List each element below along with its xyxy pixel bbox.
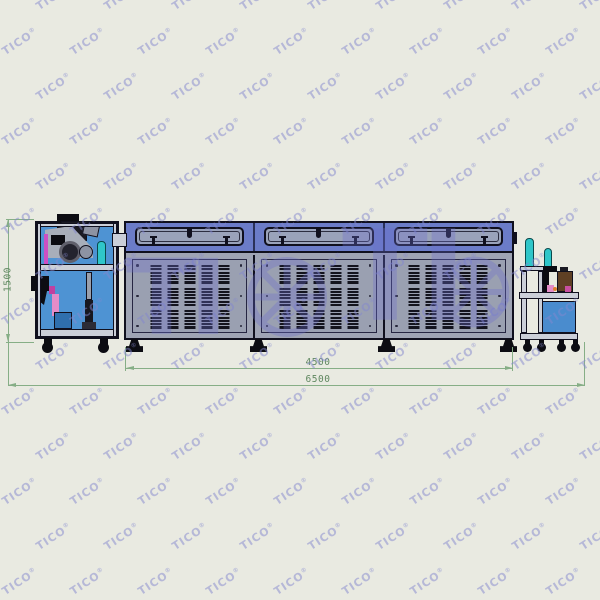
tico-watermark-tile: TICO® xyxy=(578,430,600,463)
dimension-line xyxy=(126,368,513,369)
tico-watermark-tile: TICO® xyxy=(238,520,279,553)
tico-watermark-tile: TICO® xyxy=(374,160,415,193)
screw-icon xyxy=(240,295,243,298)
cart-table-top xyxy=(519,292,579,299)
tico-watermark-tile: TICO® xyxy=(170,430,211,463)
tico-watermark-tile: TICO® xyxy=(0,430,6,463)
tico-watermark-tile: TICO® xyxy=(544,115,585,148)
screw-icon xyxy=(136,325,139,328)
cart-cylinder-short xyxy=(544,248,552,267)
tunnel-body xyxy=(126,255,512,338)
window-latch-icon xyxy=(410,236,413,244)
tico-watermark-tile: TICO® xyxy=(238,70,279,103)
tico-watermark-tile: TICO® xyxy=(306,520,347,553)
feeder-magenta-strip xyxy=(44,234,48,264)
tico-watermark-tile: TICO® xyxy=(544,205,585,238)
arrowhead-icon xyxy=(8,383,16,387)
window-latch-icon xyxy=(187,227,192,238)
tico-watermark-tile: TICO® xyxy=(34,520,75,553)
tunnel-section-body xyxy=(385,255,512,338)
dimension-label-total-length: 6500 xyxy=(238,374,398,385)
feeder-rod-dark xyxy=(85,300,93,322)
tico-watermark-tile: TICO® xyxy=(0,115,40,148)
tico-watermark-tile: TICO® xyxy=(408,475,449,508)
dimension-label-tunnel-length: 4500 xyxy=(238,357,398,368)
arrowhead-icon xyxy=(6,334,10,342)
tico-watermark-tile: TICO® xyxy=(272,25,313,58)
tico-watermark-tile: TICO® xyxy=(476,385,517,418)
tico-watermark-tile: TICO® xyxy=(102,430,143,463)
screw-icon xyxy=(266,264,269,267)
screw-icon xyxy=(136,264,139,267)
arrowhead-icon xyxy=(6,219,10,227)
tico-watermark-tile: TICO® xyxy=(442,430,483,463)
cart-cabinet xyxy=(542,301,576,333)
tico-watermark-tile: TICO® xyxy=(0,70,6,103)
tico-watermark-tile: TICO® xyxy=(408,25,449,58)
screw-icon xyxy=(498,325,501,328)
tico-watermark-tile: TICO® xyxy=(340,25,381,58)
screw-icon xyxy=(395,295,398,298)
tico-watermark-tile: TICO® xyxy=(0,520,6,553)
oven-window xyxy=(394,227,503,246)
tico-watermark-tile: TICO® xyxy=(102,520,143,553)
tico-watermark-tile: TICO® xyxy=(34,160,75,193)
tico-watermark-tile: TICO® xyxy=(68,115,109,148)
tico-watermark-tile: TICO® xyxy=(374,430,415,463)
tico-watermark-tile: TICO® xyxy=(34,430,75,463)
tunnel-section-top xyxy=(255,223,384,251)
dimension-line xyxy=(8,385,585,386)
tico-watermark-tile: TICO® xyxy=(544,25,585,58)
tico-watermark-tile: TICO® xyxy=(136,115,177,148)
feeder-frame-top xyxy=(37,223,117,227)
tico-watermark-tile: TICO® xyxy=(136,25,177,58)
tico-watermark-tile: TICO® xyxy=(68,565,109,598)
tunnel-section-body xyxy=(126,255,255,338)
tico-watermark-tile: TICO® xyxy=(374,520,415,553)
feeder-rod xyxy=(86,272,92,300)
window-latch-icon xyxy=(446,227,451,238)
machine-foot xyxy=(500,339,517,352)
oven-window xyxy=(264,227,373,246)
tico-watermark-tile: TICO® xyxy=(68,385,109,418)
service-cart xyxy=(520,237,580,340)
tico-watermark-tile: TICO® xyxy=(578,520,600,553)
tico-watermark-tile: TICO® xyxy=(476,115,517,148)
tico-watermark-tile: TICO® xyxy=(408,115,449,148)
screw-icon xyxy=(136,295,139,298)
extension-line xyxy=(6,219,34,220)
feeder-frame-left xyxy=(37,223,41,337)
tico-watermark-tile: TICO® xyxy=(0,160,6,193)
feeder-tunnel-connector xyxy=(112,233,127,247)
feeder-magenta-part xyxy=(49,286,55,294)
tico-watermark-tile: TICO® xyxy=(34,70,75,103)
tunnel-machine xyxy=(124,221,514,340)
tico-watermark-tile: TICO® xyxy=(0,475,40,508)
tunnel-door-knob xyxy=(512,232,517,244)
drawing-canvas: 1500 4500 6500 TICO®TICO®TICO®TICO®TICO®… xyxy=(0,0,600,600)
machine-foot xyxy=(250,339,267,352)
tico-watermark-tile: TICO® xyxy=(170,0,211,13)
tico-watermark-tile: TICO® xyxy=(272,475,313,508)
screw-icon xyxy=(395,325,398,328)
vent-grid xyxy=(150,265,229,329)
cart-bottom-rail xyxy=(520,333,578,340)
feeder-frame-bottom xyxy=(37,329,117,337)
screw-icon xyxy=(498,264,501,267)
tunnel-section-top xyxy=(385,223,512,251)
tico-watermark-tile: TICO® xyxy=(442,70,483,103)
cart-orange-knob xyxy=(553,287,557,291)
tico-watermark-tile: TICO® xyxy=(442,160,483,193)
tunnel-top-band xyxy=(126,223,512,253)
tico-watermark-tile: TICO® xyxy=(510,70,551,103)
dimension-label-height: 1500 xyxy=(3,258,14,302)
tico-watermark-tile: TICO® xyxy=(306,430,347,463)
vent-grid xyxy=(409,265,488,329)
window-latch-icon xyxy=(354,236,357,244)
tico-watermark-tile: TICO® xyxy=(170,70,211,103)
feeder-bottom-box xyxy=(54,312,72,329)
tico-watermark-tile: TICO® xyxy=(510,430,551,463)
tunnel-section-top xyxy=(126,223,255,251)
tico-watermark-tile: TICO® xyxy=(340,385,381,418)
screw-icon xyxy=(369,325,372,328)
tico-watermark-tile: TICO® xyxy=(170,520,211,553)
screw-icon xyxy=(240,264,243,267)
tico-watermark-tile: TICO® xyxy=(408,385,449,418)
tico-watermark-tile: TICO® xyxy=(510,520,551,553)
tico-watermark-tile: TICO® xyxy=(476,475,517,508)
tico-watermark-tile: TICO® xyxy=(204,385,245,418)
tico-watermark-tile: TICO® xyxy=(510,160,551,193)
tico-watermark-tile: TICO® xyxy=(170,160,211,193)
machine-foot xyxy=(126,339,143,352)
tico-watermark-tile: TICO® xyxy=(306,0,347,13)
tico-watermark-tile: TICO® xyxy=(442,520,483,553)
tico-watermark-tile: TICO® xyxy=(0,385,40,418)
tico-watermark-tile: TICO® xyxy=(204,25,245,58)
tico-watermark-tile: TICO® xyxy=(442,0,483,13)
feeder-rod-base xyxy=(82,322,96,329)
tunnel-section-body xyxy=(255,255,384,338)
tico-watermark-tile: TICO® xyxy=(544,565,585,598)
tico-watermark-tile: TICO® xyxy=(374,0,415,13)
tico-watermark-tile: TICO® xyxy=(476,25,517,58)
tico-watermark-tile: TICO® xyxy=(68,475,109,508)
caster-wheel xyxy=(40,338,58,353)
arrowhead-icon xyxy=(505,366,513,370)
tico-watermark-tile: TICO® xyxy=(238,0,279,13)
feeder-cylinder xyxy=(97,241,106,265)
screw-icon xyxy=(395,264,398,267)
tico-watermark-tile: TICO® xyxy=(136,565,177,598)
window-latch-icon xyxy=(316,227,321,238)
tico-watermark-tile: TICO® xyxy=(544,475,585,508)
tico-watermark-tile: TICO® xyxy=(578,70,600,103)
feeder-pulley xyxy=(59,241,81,263)
extension-line xyxy=(6,342,34,343)
tico-watermark-tile: TICO® xyxy=(578,250,600,283)
tico-watermark-tile: TICO® xyxy=(374,70,415,103)
tico-watermark-tile: TICO® xyxy=(306,70,347,103)
tico-watermark-tile: TICO® xyxy=(0,565,40,598)
window-latch-icon xyxy=(281,236,284,244)
tico-watermark-tile: TICO® xyxy=(204,565,245,598)
tico-watermark-tile: TICO® xyxy=(68,25,109,58)
vent-panel xyxy=(261,259,376,333)
window-latch-icon xyxy=(483,236,486,244)
vent-panel xyxy=(132,259,247,333)
tico-watermark-tile: TICO® xyxy=(0,340,6,373)
tico-watermark-tile: TICO® xyxy=(102,70,143,103)
screw-icon xyxy=(369,264,372,267)
machine-foot xyxy=(378,339,395,352)
window-latch-icon xyxy=(152,236,155,244)
feeder-roller xyxy=(79,245,93,259)
screw-icon xyxy=(498,295,501,298)
tico-watermark-tile: TICO® xyxy=(544,385,585,418)
tico-watermark-tile: TICO® xyxy=(476,565,517,598)
tico-watermark-tile: TICO® xyxy=(272,385,313,418)
tico-watermark-tile: TICO® xyxy=(238,430,279,463)
tico-watermark-tile: TICO® xyxy=(578,0,600,13)
cart-post-left xyxy=(521,271,527,333)
tico-watermark-tile: TICO® xyxy=(0,0,6,13)
tico-watermark-tile: TICO® xyxy=(272,565,313,598)
tico-watermark-tile: TICO® xyxy=(578,160,600,193)
screw-icon xyxy=(266,325,269,328)
cart-cylinder-tall xyxy=(525,238,534,267)
oven-window xyxy=(135,227,244,246)
extension-line xyxy=(584,342,585,386)
feeder-unit xyxy=(35,221,119,339)
arrowhead-icon xyxy=(577,383,585,387)
tico-watermark-tile: TICO® xyxy=(136,385,177,418)
tico-watermark-tile: TICO® xyxy=(204,475,245,508)
caster-wheel xyxy=(96,338,114,353)
tico-watermark-tile: TICO® xyxy=(0,25,40,58)
vent-grid xyxy=(279,265,358,329)
extension-line xyxy=(8,343,9,386)
feeder-shelf xyxy=(39,264,115,271)
tico-watermark-tile: TICO® xyxy=(34,0,75,13)
tico-watermark-tile: TICO® xyxy=(340,115,381,148)
screw-icon xyxy=(240,325,243,328)
screw-icon xyxy=(369,295,372,298)
tico-watermark-tile: TICO® xyxy=(340,475,381,508)
tico-watermark-tile: TICO® xyxy=(102,160,143,193)
tico-watermark-tile: TICO® xyxy=(238,160,279,193)
tico-watermark-tile: TICO® xyxy=(510,0,551,13)
tico-watermark-tile: TICO® xyxy=(306,160,347,193)
tico-watermark-tile: TICO® xyxy=(340,565,381,598)
arrowhead-icon xyxy=(126,366,134,370)
tico-watermark-tile: TICO® xyxy=(408,565,449,598)
tico-watermark-tile: TICO® xyxy=(204,115,245,148)
tico-watermark-tile: TICO® xyxy=(136,475,177,508)
vent-panel xyxy=(391,259,506,333)
window-latch-icon xyxy=(225,236,228,244)
screw-icon xyxy=(266,295,269,298)
tico-watermark-tile: TICO® xyxy=(102,0,143,13)
tico-watermark-tile: TICO® xyxy=(272,115,313,148)
